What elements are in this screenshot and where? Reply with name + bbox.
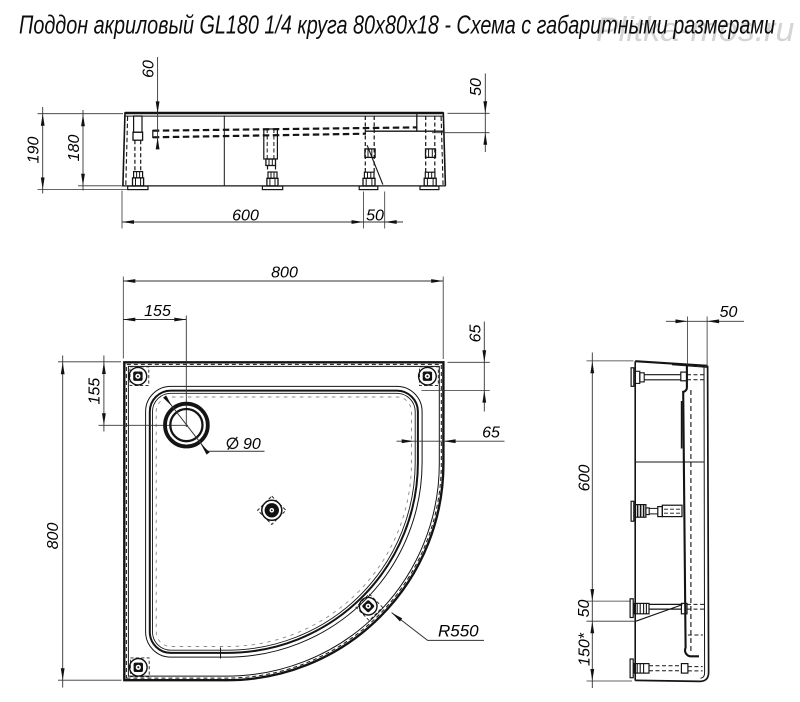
- svg-text:155: 155: [144, 303, 171, 320]
- svg-text:800: 800: [271, 265, 298, 282]
- svg-text:Поддон акриловый GL180 1/4 кр: Поддон акриловый GL180 1/4 круга 80х80х1…: [19, 10, 775, 40]
- svg-text:600: 600: [232, 207, 259, 224]
- svg-text:R550: R550: [438, 622, 479, 641]
- svg-text:50: 50: [468, 78, 485, 96]
- svg-text:150*: 150*: [577, 632, 594, 666]
- svg-text:90: 90: [243, 436, 261, 453]
- svg-text:50: 50: [576, 600, 593, 618]
- svg-text:50: 50: [720, 304, 738, 321]
- svg-text:800: 800: [45, 523, 62, 550]
- svg-text:190: 190: [26, 137, 43, 164]
- svg-text:600: 600: [577, 465, 594, 492]
- svg-text:65: 65: [482, 425, 500, 442]
- svg-text:60: 60: [141, 60, 158, 78]
- svg-text:50: 50: [366, 207, 384, 224]
- svg-text:180: 180: [66, 135, 83, 162]
- svg-text:65: 65: [468, 325, 485, 343]
- svg-text:155: 155: [87, 378, 104, 405]
